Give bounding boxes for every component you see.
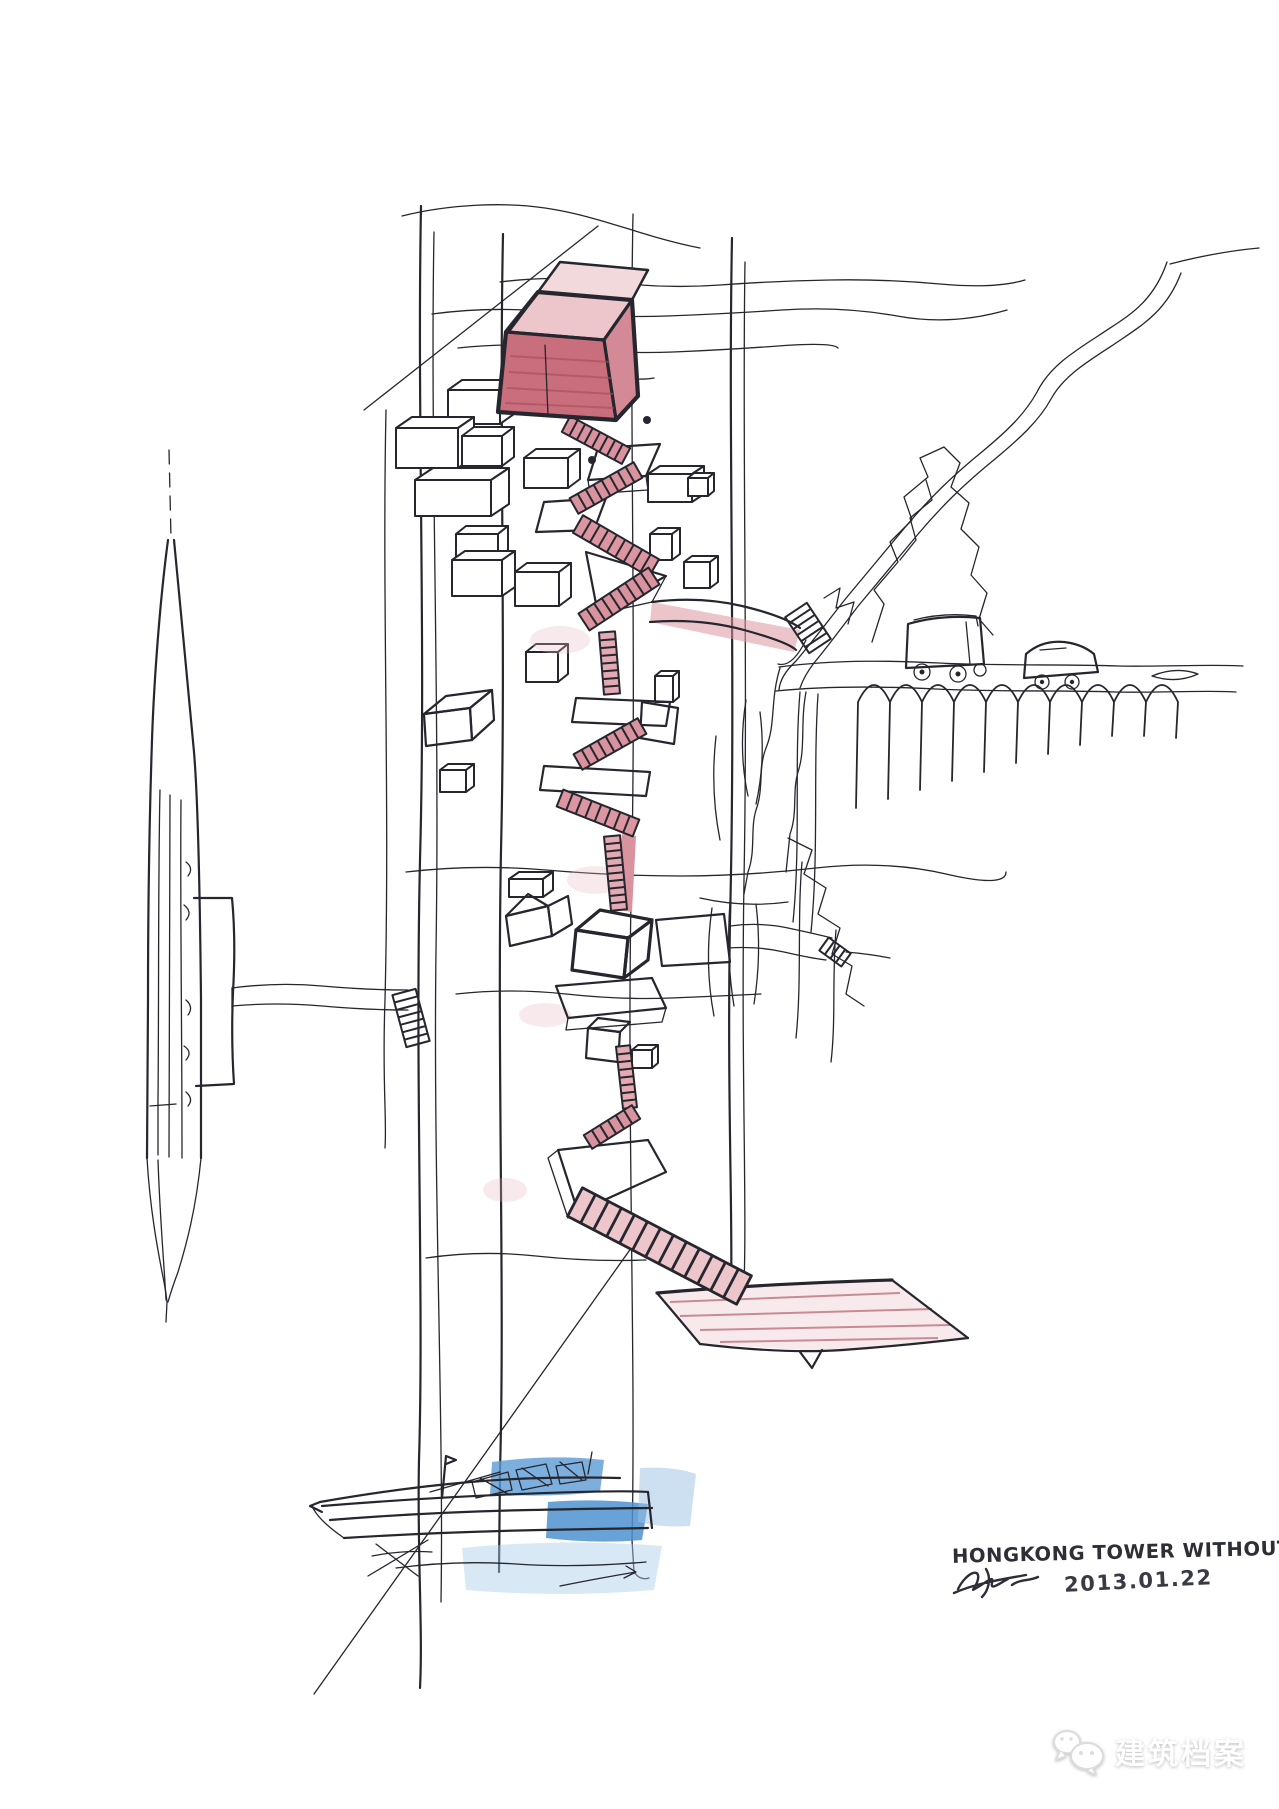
sky-red-box bbox=[498, 262, 648, 420]
house-box bbox=[632, 1045, 658, 1068]
signature-scribble bbox=[952, 1563, 1052, 1599]
jetty-post-hatch bbox=[392, 989, 429, 1047]
gable-house bbox=[506, 894, 572, 946]
signature-date: 2013.01.22 bbox=[1063, 1565, 1213, 1597]
left-spire-tower bbox=[147, 450, 234, 1322]
house-box bbox=[684, 556, 718, 588]
stacked-houses bbox=[396, 309, 718, 1069]
house-box bbox=[440, 764, 474, 792]
house-box bbox=[462, 427, 514, 466]
stair-flight bbox=[573, 515, 659, 576]
wechat-logo-icon bbox=[1050, 1727, 1106, 1775]
house-box bbox=[515, 563, 571, 606]
house-box bbox=[655, 671, 679, 702]
jetty-bridge bbox=[232, 984, 408, 1010]
house-box bbox=[650, 528, 680, 560]
gable-house bbox=[424, 690, 494, 746]
bus-sketch bbox=[906, 615, 986, 682]
signature-row: 2013.01.22 bbox=[952, 1563, 1213, 1599]
ground-platform bbox=[657, 1280, 968, 1368]
sketch-canvas bbox=[0, 0, 1279, 1809]
hillside-road bbox=[776, 248, 1259, 692]
stair-flight bbox=[574, 718, 647, 770]
viaduct-arches bbox=[856, 685, 1178, 808]
bridge-lower-east bbox=[728, 924, 890, 960]
house-box bbox=[509, 872, 553, 897]
bridge-upper-east bbox=[650, 600, 806, 665]
house-box bbox=[524, 449, 580, 488]
watermark-brand: 建筑档案 bbox=[1115, 1729, 1247, 1773]
cliff-rocks bbox=[700, 447, 993, 1062]
scanned-sketch-page: HONGKONG TOWER WITHOUT LIFT 2013.01.22 建… bbox=[0, 0, 1279, 1809]
final-grand-stair bbox=[568, 1188, 752, 1304]
stair-flight bbox=[557, 790, 640, 837]
stair-ladder bbox=[599, 631, 620, 694]
zigzag-stair bbox=[483, 416, 751, 1304]
watermark: 建筑档案 bbox=[1050, 1727, 1247, 1775]
house-box bbox=[452, 551, 515, 596]
house-box bbox=[688, 473, 714, 496]
house-box bbox=[415, 468, 509, 516]
